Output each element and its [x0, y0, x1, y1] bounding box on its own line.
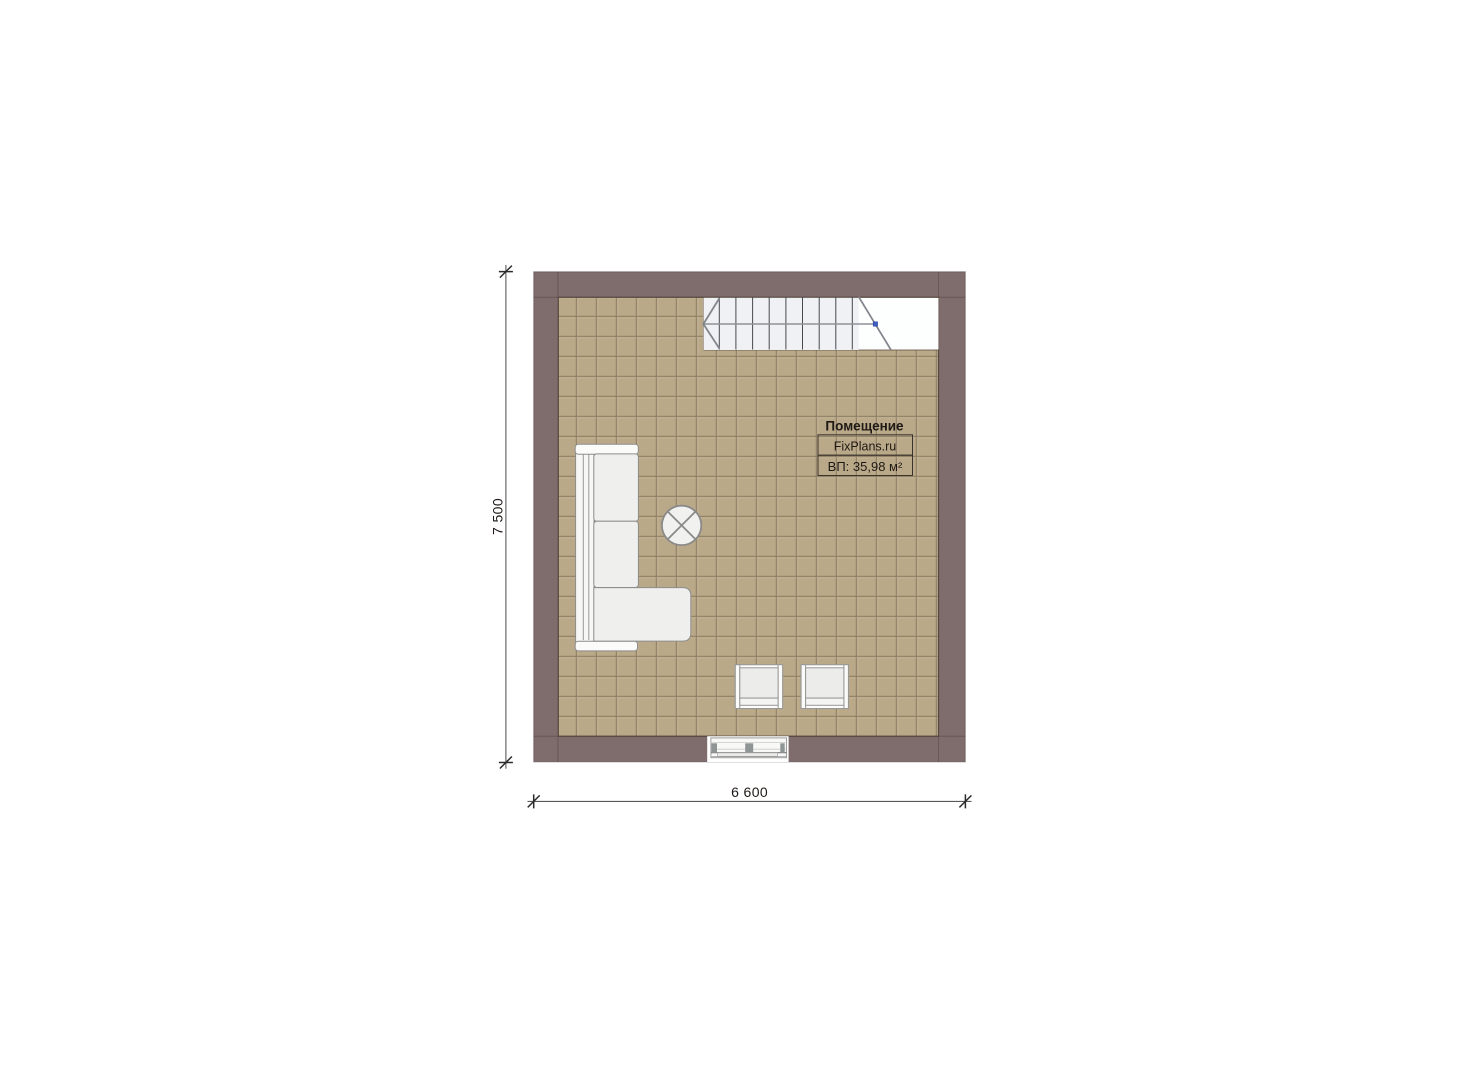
svg-text:6 600: 6 600 — [731, 784, 768, 800]
svg-text:ВП: 35,98 м²: ВП: 35,98 м² — [828, 459, 903, 474]
svg-text:7 500: 7 500 — [490, 498, 506, 535]
svg-text:FixPlans.ru: FixPlans.ru — [834, 440, 897, 454]
svg-text:Помещение: Помещение — [825, 419, 904, 434]
